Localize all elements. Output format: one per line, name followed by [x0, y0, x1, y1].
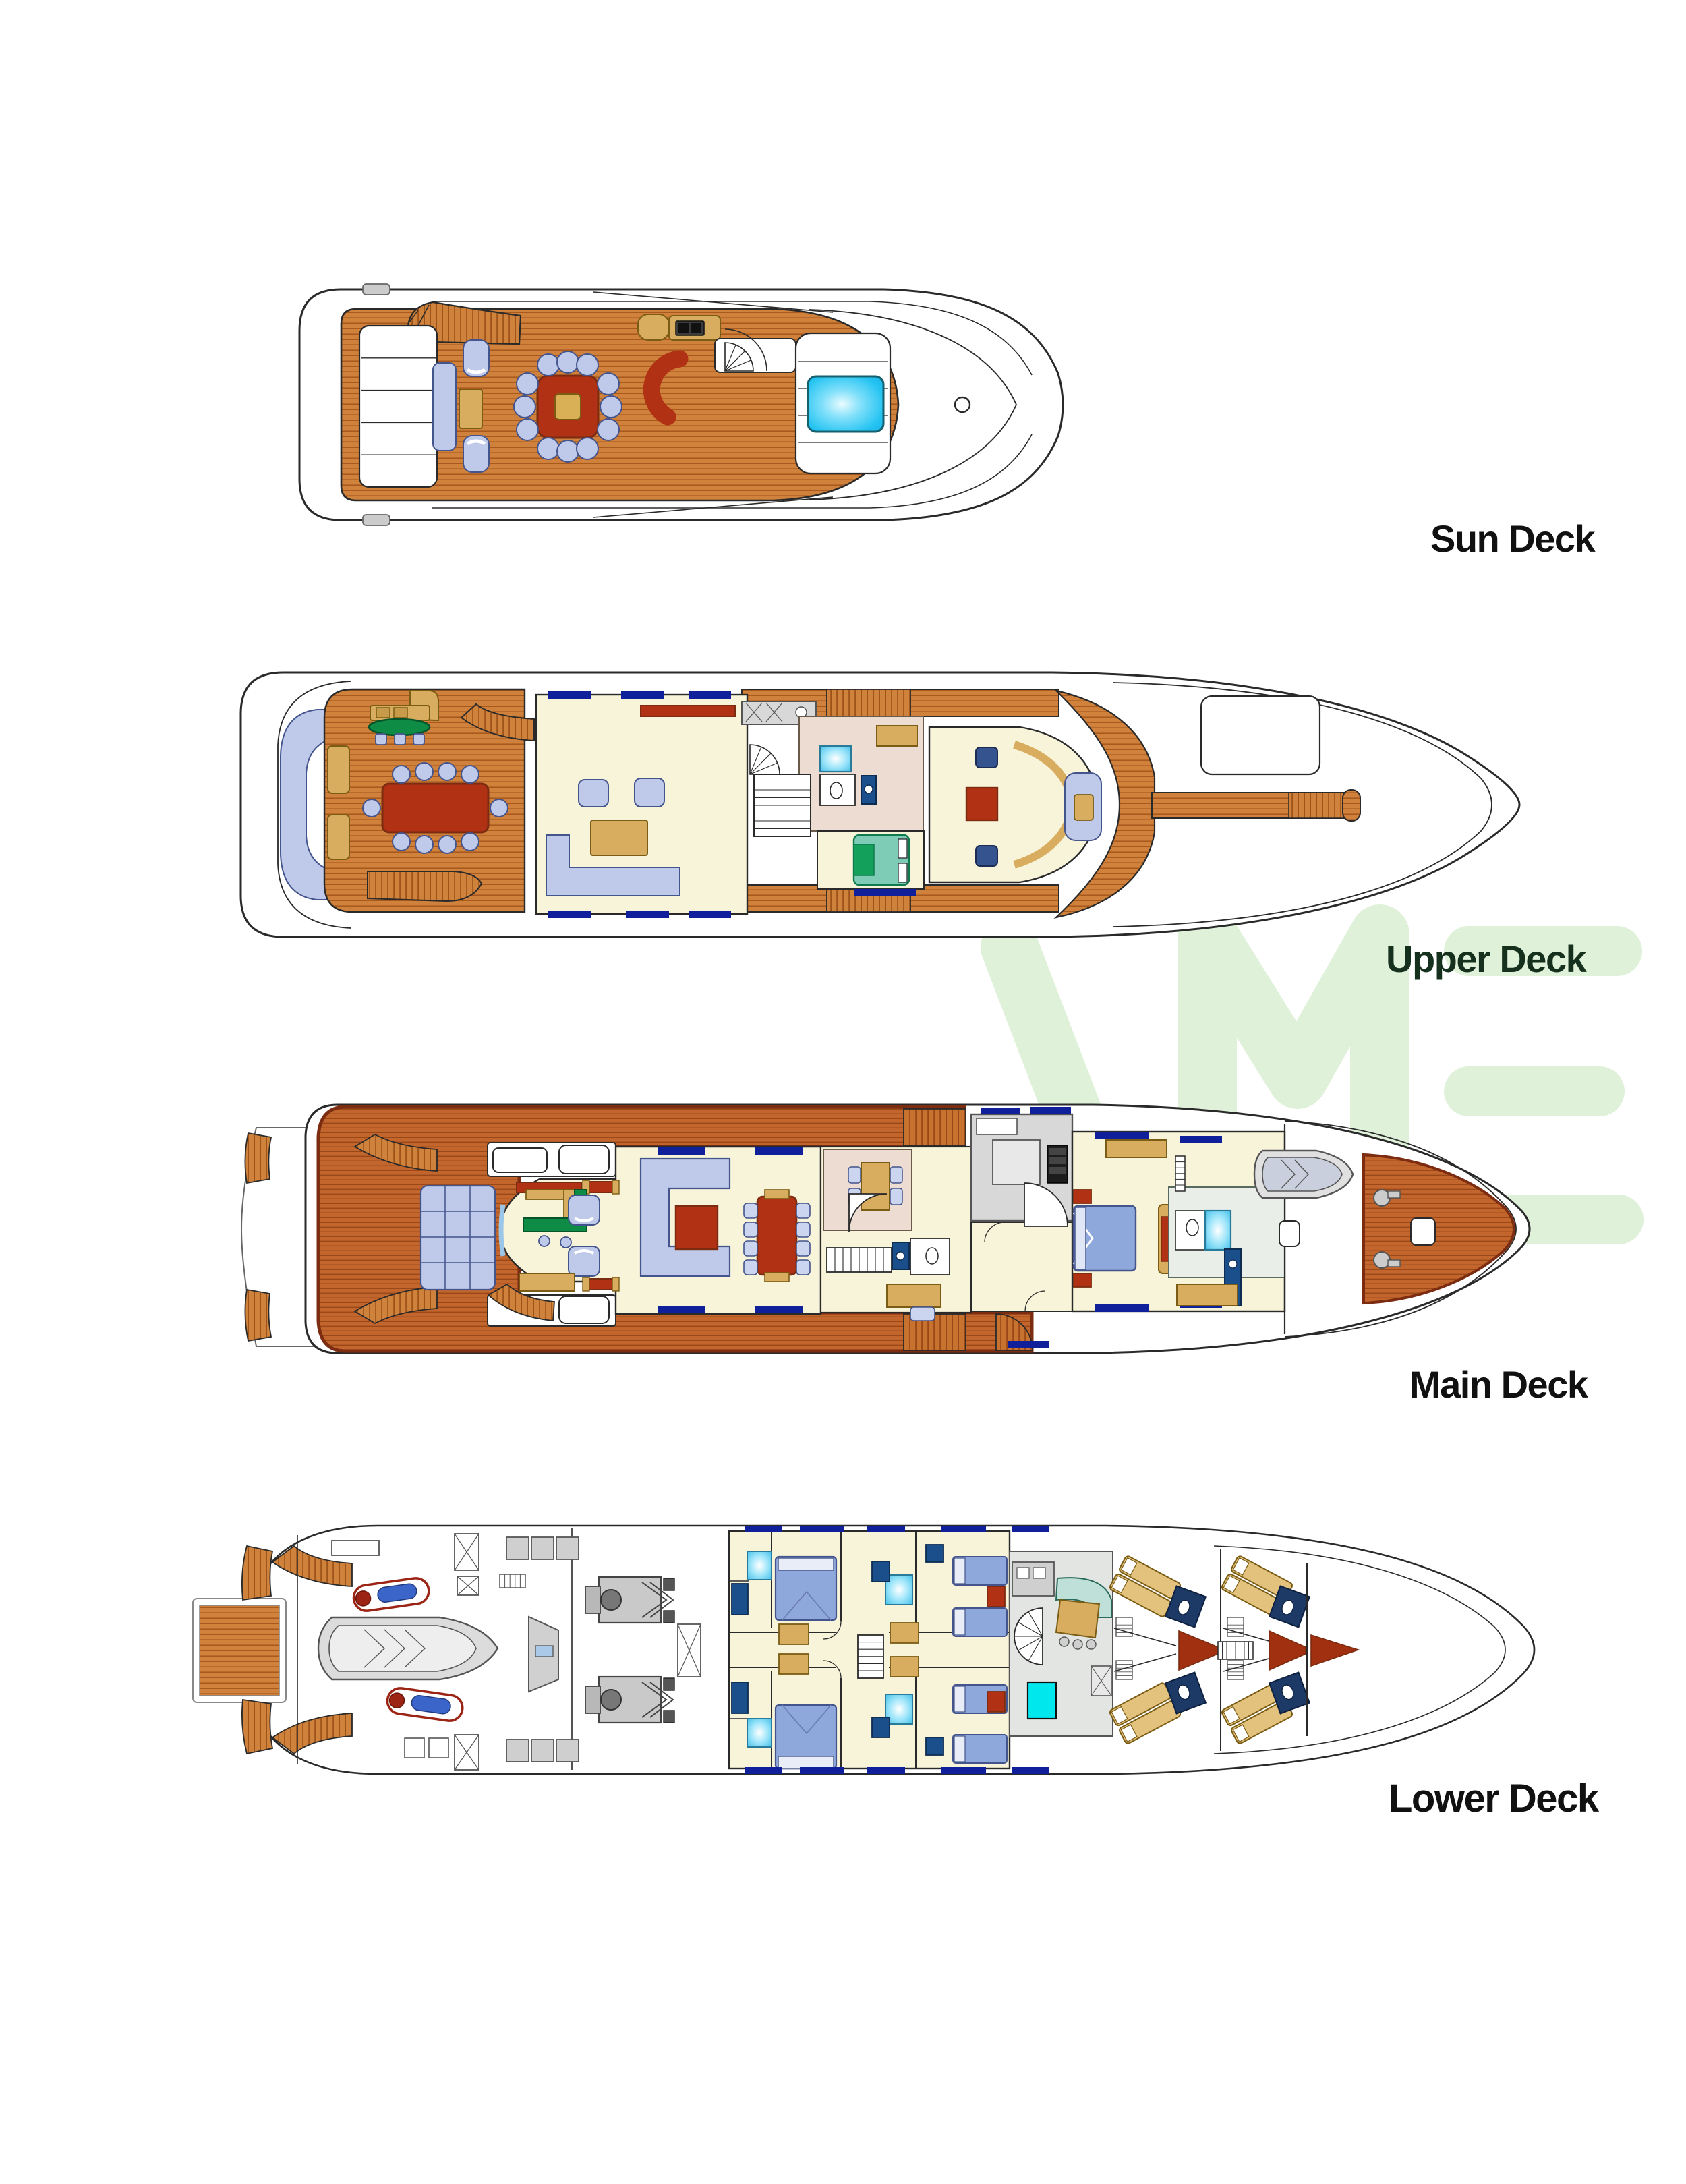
svg-text:Upper Deck: Upper Deck	[1386, 938, 1588, 980]
svg-text:Main Deck: Main Deck	[1409, 1363, 1589, 1406]
svg-text:Sun Deck: Sun Deck	[1430, 517, 1596, 560]
svg-text:Lower Deck: Lower Deck	[1389, 1777, 1600, 1820]
